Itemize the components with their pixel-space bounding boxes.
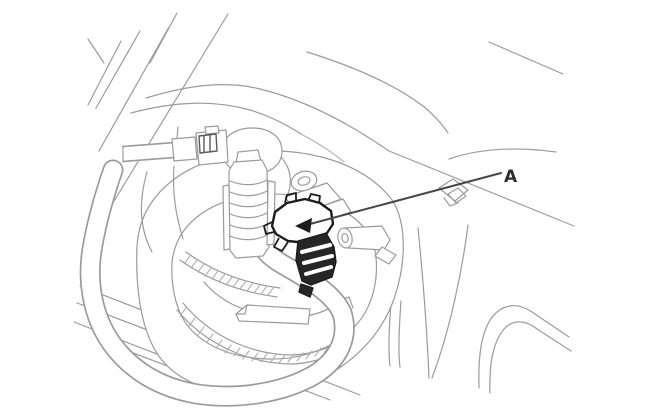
seat-frame-lines	[389, 225, 571, 393]
illustration-canvas: A	[0, 0, 650, 418]
hose-clamp	[172, 126, 228, 165]
ring-tab	[236, 305, 310, 324]
callout-label-a: A	[504, 167, 518, 187]
line-art-figure: A	[0, 0, 650, 418]
